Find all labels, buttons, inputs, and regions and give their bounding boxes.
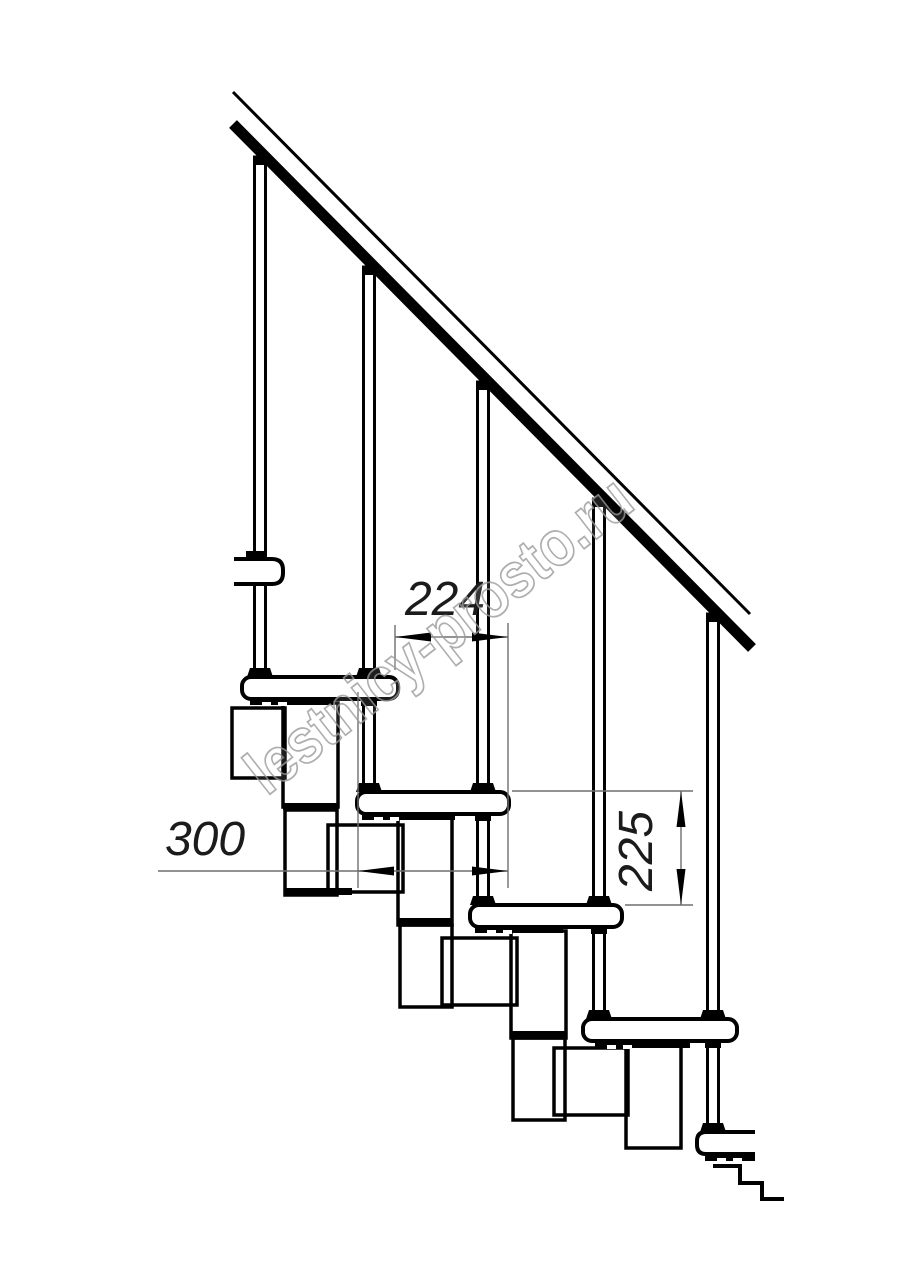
module-joint-flange bbox=[398, 918, 452, 925]
tread bbox=[697, 1132, 755, 1154]
tread bbox=[357, 792, 509, 814]
plate-notch bbox=[390, 817, 399, 821]
plate-notch bbox=[374, 817, 383, 821]
bolt-foot-collar bbox=[356, 783, 382, 792]
bolt-foot-collar bbox=[586, 1010, 612, 1019]
baluster-rail-collar bbox=[477, 381, 490, 390]
module-joint-flange bbox=[283, 803, 338, 810]
plate-notch bbox=[278, 702, 287, 706]
tread-bolt bbox=[708, 1041, 719, 1132]
bolt-foot-collar bbox=[470, 896, 496, 905]
module-joint-flange bbox=[511, 1031, 566, 1038]
baluster-foot-collar bbox=[470, 783, 496, 792]
baluster bbox=[708, 614, 719, 1019]
dimension-label-rise: 225 bbox=[610, 811, 663, 892]
baluster-rail-collar bbox=[254, 156, 267, 165]
baluster bbox=[594, 499, 605, 905]
tread-bolt bbox=[478, 814, 489, 905]
rail-end-bracket bbox=[234, 559, 283, 584]
bolt-top-collar bbox=[591, 927, 607, 934]
plate-notch bbox=[623, 1045, 632, 1049]
plate-notch bbox=[607, 1045, 616, 1049]
dimension-label-tread-depth: 300 bbox=[165, 813, 245, 866]
bolt-top-collar bbox=[705, 1041, 721, 1048]
baluster bbox=[364, 267, 375, 677]
plate-notch bbox=[503, 930, 512, 934]
baluster-foot-collar bbox=[700, 1010, 726, 1019]
staircase-side-view-drawing: 224 300 225 lestnicy-prosto.ru bbox=[0, 0, 914, 1280]
baluster-foot-collar bbox=[247, 668, 273, 677]
plate-notch bbox=[733, 1158, 742, 1162]
tread bbox=[583, 1019, 737, 1041]
tread bbox=[470, 905, 622, 927]
plate-notch bbox=[487, 930, 496, 934]
baluster-foot-collar bbox=[586, 896, 612, 905]
baluster-rail-collar bbox=[363, 266, 376, 275]
plate-notch bbox=[717, 1158, 726, 1162]
bolt-foot-collar bbox=[700, 1123, 726, 1132]
tread-bolt bbox=[594, 927, 605, 1019]
technical-drawing-page: 224 300 225 lestnicy-prosto.ru bbox=[0, 0, 914, 1280]
bolt-top-collar bbox=[475, 814, 491, 821]
plate-notch bbox=[262, 702, 271, 706]
tread-mounting-plate bbox=[705, 1154, 755, 1161]
baluster bbox=[255, 157, 266, 677]
baluster-rail-collar bbox=[707, 613, 720, 622]
